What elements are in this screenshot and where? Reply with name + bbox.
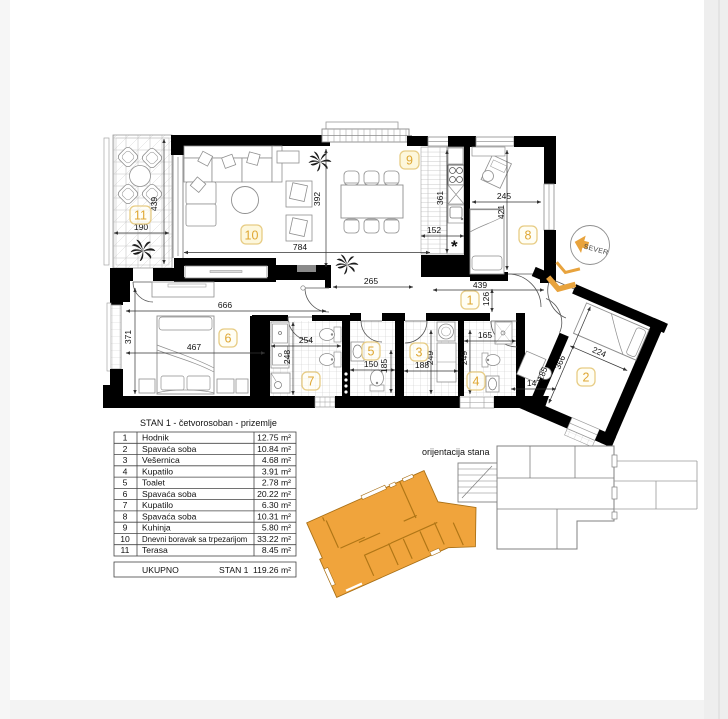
svg-text:10.84 m²: 10.84 m² (257, 444, 291, 454)
svg-text:9: 9 (123, 523, 128, 533)
svg-text:245: 245 (497, 191, 511, 201)
svg-text:7: 7 (308, 375, 315, 389)
svg-text:orijentacija stana: orijentacija stana (422, 447, 490, 457)
svg-text:3: 3 (416, 346, 423, 360)
svg-text:Kuhinja: Kuhinja (142, 523, 171, 533)
svg-text:152: 152 (427, 225, 441, 235)
svg-text:Dnevni boravak sa trpezarijom: Dnevni boravak sa trpezarijom (142, 535, 247, 544)
svg-text:2: 2 (583, 371, 590, 385)
svg-text:165: 165 (478, 330, 492, 340)
svg-text:8.45 m²: 8.45 m² (262, 545, 291, 555)
svg-text:Kupatilo: Kupatilo (142, 500, 173, 510)
svg-text:5.80 m²: 5.80 m² (262, 523, 291, 533)
svg-text:126: 126 (481, 292, 491, 306)
svg-text:666: 666 (218, 300, 232, 310)
svg-text:10: 10 (120, 534, 130, 544)
svg-text:5: 5 (123, 478, 128, 488)
svg-text:Toalet: Toalet (142, 478, 166, 488)
svg-text:Spavaća soba: Spavaća soba (142, 444, 197, 454)
svg-text:5: 5 (368, 345, 375, 359)
svg-text:33.22 m²: 33.22 m² (257, 534, 291, 544)
svg-text:Terasa: Terasa (142, 545, 168, 555)
svg-text:6: 6 (225, 332, 232, 346)
svg-text:265: 265 (364, 276, 378, 286)
svg-text:6: 6 (123, 489, 128, 499)
svg-text:185: 185 (379, 359, 389, 373)
svg-text:*: * (451, 237, 458, 256)
svg-text:392: 392 (312, 192, 322, 206)
svg-text:1: 1 (123, 433, 128, 443)
svg-text:2: 2 (123, 444, 128, 454)
svg-text:4.68 m²: 4.68 m² (262, 455, 291, 465)
svg-text:784: 784 (293, 242, 307, 252)
svg-text:6.30 m²: 6.30 m² (262, 500, 291, 510)
svg-text:467: 467 (187, 342, 201, 352)
svg-text:371: 371 (123, 330, 133, 344)
svg-text:248: 248 (282, 350, 292, 364)
svg-text:421: 421 (496, 205, 506, 219)
svg-text:3.91 m²: 3.91 m² (262, 466, 291, 476)
svg-text:20.22 m²: 20.22 m² (257, 489, 291, 499)
svg-text:119.26 m²: 119.26 m² (253, 565, 291, 575)
svg-text:10.31 m²: 10.31 m² (257, 511, 291, 521)
svg-text:10: 10 (245, 229, 259, 243)
svg-text:Spavaća soba: Spavaća soba (142, 511, 197, 521)
svg-text:7: 7 (123, 500, 128, 510)
svg-text:Kupatilo: Kupatilo (142, 466, 173, 476)
svg-text:2.78 m²: 2.78 m² (262, 478, 291, 488)
svg-text:254: 254 (299, 335, 313, 345)
svg-text:12.75 m²: 12.75 m² (257, 433, 291, 443)
svg-text:439: 439 (473, 280, 487, 290)
svg-text:Hodnik: Hodnik (142, 433, 169, 443)
svg-text:STAN 1: STAN 1 (219, 565, 249, 575)
svg-text:STAN 1 - četvorosoban -: STAN 1 - četvorosoban - prizemlje (140, 418, 277, 428)
svg-text:1: 1 (467, 294, 474, 308)
svg-text:4: 4 (123, 466, 128, 476)
svg-text:3: 3 (123, 455, 128, 465)
svg-text:11: 11 (134, 209, 147, 223)
svg-text:249: 249 (459, 351, 469, 365)
svg-text:4: 4 (473, 375, 480, 389)
svg-text:8: 8 (123, 511, 128, 521)
svg-text:UKUPNO: UKUPNO (142, 565, 179, 575)
svg-text:Vešernica: Vešernica (142, 455, 180, 465)
svg-text:11: 11 (121, 545, 130, 555)
svg-text:9: 9 (406, 154, 413, 168)
svg-text:361: 361 (435, 191, 445, 205)
svg-text:Spavaća soba: Spavaća soba (142, 489, 197, 499)
svg-text:8: 8 (525, 229, 532, 243)
